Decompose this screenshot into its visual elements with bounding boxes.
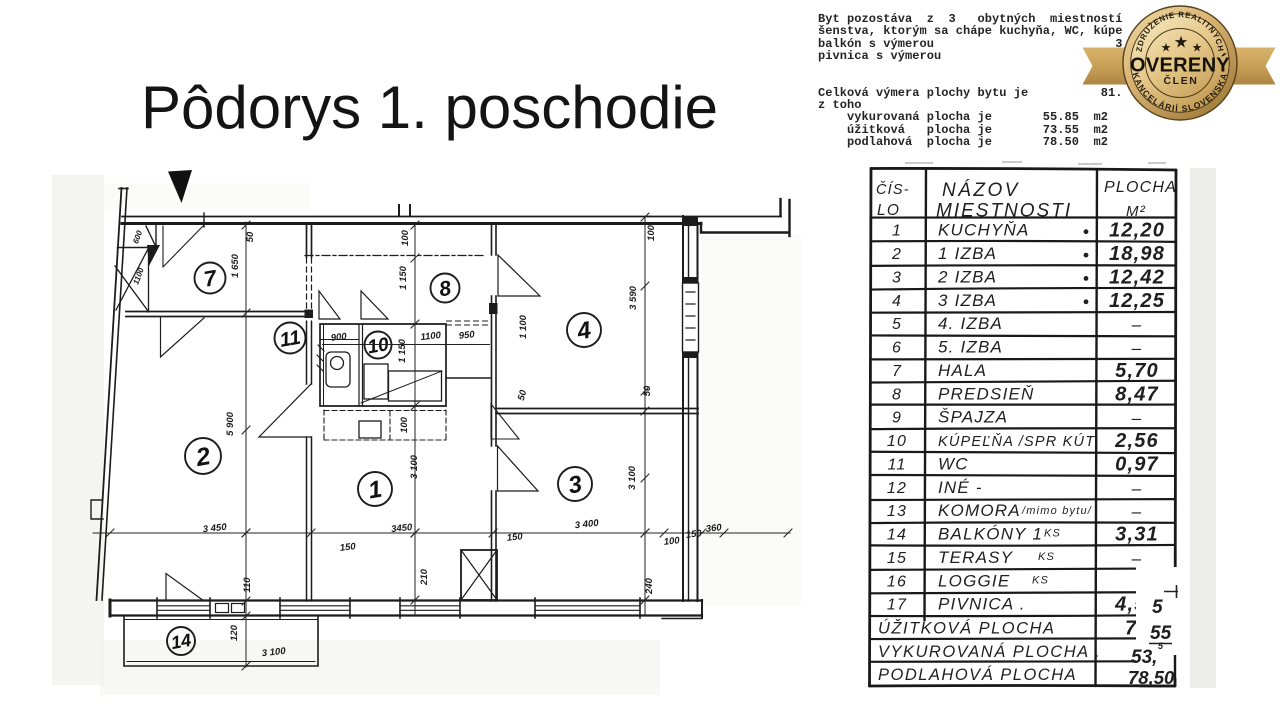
svg-text:11: 11 bbox=[887, 456, 906, 473]
svg-text:12,42: 12,42 bbox=[1109, 266, 1165, 288]
svg-text:VYKUROVANÁ PLOCHA .: VYKUROVANÁ PLOCHA . bbox=[878, 642, 1101, 661]
svg-text:ÚŽITKOVÁ PLOCHA: ÚŽITKOVÁ PLOCHA bbox=[878, 618, 1055, 637]
svg-text:2: 2 bbox=[891, 246, 902, 263]
svg-text:MIESTNOSTI: MIESTNOSTI bbox=[936, 201, 1072, 222]
svg-text:2,56: 2,56 bbox=[1114, 430, 1159, 452]
svg-text:0,97: 0,97 bbox=[1115, 453, 1159, 475]
svg-text:WC: WC bbox=[938, 454, 969, 473]
svg-text:BALKÓNY 1: BALKÓNY 1 bbox=[938, 525, 1043, 544]
svg-text:3,31: 3,31 bbox=[1115, 524, 1159, 546]
svg-text:17: 17 bbox=[887, 597, 907, 614]
svg-text:ČÍS-: ČÍS- bbox=[876, 181, 910, 198]
svg-text:HALA: HALA bbox=[938, 361, 987, 380]
svg-text:360: 360 bbox=[705, 522, 723, 535]
svg-text:15: 15 bbox=[887, 550, 907, 567]
svg-text:150: 150 bbox=[506, 531, 524, 544]
svg-text:240: 240 bbox=[644, 577, 655, 595]
svg-text:1: 1 bbox=[892, 223, 902, 240]
svg-text:50: 50 bbox=[245, 231, 256, 242]
svg-text:–: – bbox=[1131, 502, 1143, 521]
svg-text:3 IZBA: 3 IZBA bbox=[938, 291, 997, 310]
svg-text:150: 150 bbox=[685, 528, 703, 541]
svg-text:–: – bbox=[1131, 549, 1143, 568]
svg-text:1100: 1100 bbox=[131, 266, 146, 286]
svg-text:7: 7 bbox=[892, 363, 902, 380]
svg-text:50: 50 bbox=[642, 385, 653, 396]
svg-text:53,: 53, bbox=[1131, 647, 1157, 668]
svg-text:5: 5 bbox=[892, 316, 902, 333]
svg-text:1100: 1100 bbox=[420, 330, 442, 343]
svg-text:6: 6 bbox=[892, 340, 902, 357]
svg-text:100: 100 bbox=[400, 229, 411, 246]
svg-text:/mimo bytu/: /mimo bytu/ bbox=[1021, 505, 1092, 517]
svg-text:950: 950 bbox=[458, 329, 476, 342]
svg-text:210: 210 bbox=[419, 568, 430, 586]
svg-text:KUCHYŇA: KUCHYŇA bbox=[938, 221, 1030, 240]
svg-text:KS: KS bbox=[1044, 528, 1061, 540]
svg-text:110: 110 bbox=[242, 577, 253, 593]
svg-text:ČLEN: ČLEN bbox=[1164, 74, 1199, 87]
svg-text:900: 900 bbox=[330, 331, 348, 344]
svg-text:5. IZBA: 5. IZBA bbox=[938, 338, 1003, 357]
svg-text:3: 3 bbox=[566, 471, 584, 500]
svg-text:100: 100 bbox=[399, 416, 410, 433]
svg-text:1 100: 1 100 bbox=[518, 314, 529, 338]
svg-text:8: 8 bbox=[892, 386, 902, 403]
svg-text:1 IZBA: 1 IZBA bbox=[938, 244, 997, 263]
svg-text:7: 7 bbox=[202, 265, 220, 292]
svg-text:3 100: 3 100 bbox=[409, 454, 420, 478]
svg-text:1: 1 bbox=[366, 476, 384, 505]
svg-text:1 150: 1 150 bbox=[398, 265, 409, 289]
svg-text:KS: KS bbox=[1038, 551, 1055, 563]
svg-text:OVERENÝ: OVERENÝ bbox=[1130, 53, 1230, 77]
svg-text:3 590: 3 590 bbox=[628, 285, 639, 309]
svg-text:PLOCHA: PLOCHA bbox=[1104, 179, 1177, 196]
svg-text:12,20: 12,20 bbox=[1109, 220, 1165, 242]
svg-text:★: ★ bbox=[1174, 34, 1189, 52]
svg-text:150: 150 bbox=[339, 541, 357, 554]
svg-text:4: 4 bbox=[574, 317, 593, 346]
svg-text:14: 14 bbox=[887, 527, 907, 544]
svg-text:–: – bbox=[1131, 479, 1143, 498]
svg-text:8: 8 bbox=[437, 277, 453, 302]
svg-text:PODLAHOVÁ PLOCHA: PODLAHOVÁ PLOCHA bbox=[878, 665, 1077, 684]
svg-text:14: 14 bbox=[169, 630, 192, 653]
svg-text:PREDSIEŇ: PREDSIEŇ bbox=[938, 384, 1035, 403]
svg-text:10: 10 bbox=[887, 433, 907, 450]
svg-text:5 900: 5 900 bbox=[225, 411, 236, 435]
svg-text:600: 600 bbox=[131, 229, 144, 245]
svg-text:LO: LO bbox=[877, 202, 900, 219]
svg-text:12: 12 bbox=[887, 480, 907, 497]
svg-text:4: 4 bbox=[892, 293, 902, 310]
svg-text:18,98: 18,98 bbox=[1109, 243, 1165, 265]
svg-text:–: – bbox=[1131, 315, 1143, 334]
svg-text:KOMORA: KOMORA bbox=[938, 501, 1021, 520]
svg-text:100: 100 bbox=[646, 224, 657, 241]
svg-text:M²: M² bbox=[1126, 203, 1146, 220]
svg-text:PIVNICA .: PIVNICA . bbox=[938, 595, 1026, 614]
svg-text:1 650: 1 650 bbox=[230, 253, 241, 277]
svg-text:4. IZBA: 4. IZBA bbox=[938, 314, 1003, 333]
svg-text:TERASY: TERASY bbox=[938, 548, 1014, 567]
svg-text:9: 9 bbox=[892, 410, 902, 427]
svg-text:INÉ -: INÉ - bbox=[938, 478, 983, 497]
svg-text:NÁZOV: NÁZOV bbox=[942, 180, 1020, 201]
svg-text:3 100: 3 100 bbox=[627, 465, 638, 489]
svg-text:3 400: 3 400 bbox=[574, 518, 600, 531]
svg-text:2 IZBA: 2 IZBA bbox=[937, 267, 997, 286]
svg-text:–: – bbox=[1131, 339, 1143, 358]
svg-text:–: – bbox=[1131, 409, 1143, 428]
svg-text:10: 10 bbox=[366, 334, 391, 358]
svg-text:3: 3 bbox=[892, 269, 902, 286]
svg-text:LOGGIE: LOGGIE bbox=[938, 571, 1010, 590]
svg-text:11: 11 bbox=[278, 327, 302, 352]
svg-text:8,47: 8,47 bbox=[1115, 383, 1159, 405]
svg-text:ŠPAJZA: ŠPAJZA bbox=[938, 408, 1008, 427]
svg-text:50: 50 bbox=[516, 388, 530, 402]
svg-text:★: ★ bbox=[1192, 41, 1203, 55]
svg-text:12,25: 12,25 bbox=[1109, 290, 1165, 312]
svg-text:120: 120 bbox=[229, 624, 240, 641]
svg-text:KS: KS bbox=[1032, 574, 1049, 586]
svg-text:3450: 3450 bbox=[391, 522, 414, 535]
svg-text:100: 100 bbox=[663, 535, 681, 548]
svg-text:1 150: 1 150 bbox=[397, 338, 408, 362]
svg-text:2: 2 bbox=[193, 442, 213, 472]
svg-text:13: 13 bbox=[887, 503, 907, 520]
svg-text:16: 16 bbox=[887, 573, 907, 590]
svg-text:5,70: 5,70 bbox=[1115, 360, 1159, 382]
svg-text:5: 5 bbox=[1152, 597, 1163, 618]
svg-text:KÚPEĽŇA /SPR KÚT: KÚPEĽŇA /SPR KÚT bbox=[938, 433, 1095, 450]
svg-text:★: ★ bbox=[1161, 41, 1172, 55]
